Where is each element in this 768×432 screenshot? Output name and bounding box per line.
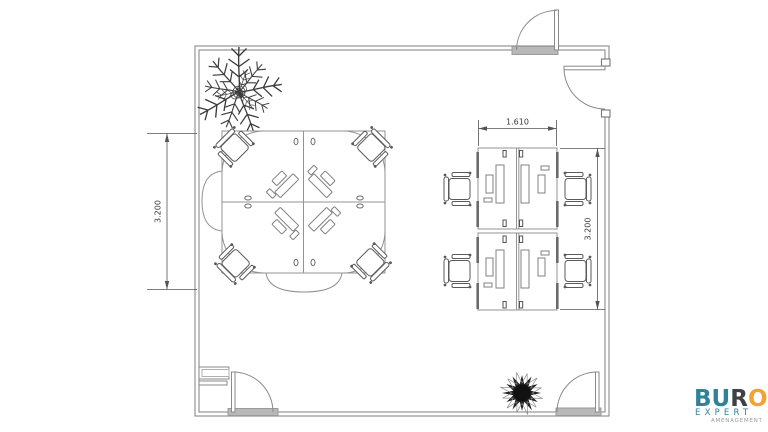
monitor bbox=[521, 165, 529, 203]
wall-cabinet-bottom-left bbox=[199, 367, 229, 385]
arrowhead bbox=[165, 281, 169, 290]
floor-plan-canvas: 3.200 1.610 3.200 BURO EXPERT AMENAGEMEN… bbox=[0, 0, 768, 432]
keyboard bbox=[538, 258, 545, 276]
keyboard bbox=[486, 258, 493, 276]
office-chair bbox=[564, 172, 592, 207]
dimension-label-right: 3.200 bbox=[584, 218, 593, 241]
door-leaf bbox=[596, 372, 600, 412]
door-leaf bbox=[555, 10, 559, 50]
dimension-label-left: 3.200 bbox=[154, 200, 163, 223]
door-swing-arc bbox=[517, 11, 557, 51]
desk-phone bbox=[541, 166, 549, 170]
office-chair bbox=[444, 172, 472, 207]
office-chair bbox=[564, 254, 592, 289]
office-chair bbox=[444, 254, 472, 289]
desk-phone bbox=[541, 251, 549, 255]
arrowhead bbox=[165, 134, 169, 143]
monitor bbox=[521, 250, 529, 288]
keyboard bbox=[538, 175, 545, 193]
logo-subtitle-amenagement: AMENAGEMENT bbox=[711, 418, 763, 424]
door-threshold bbox=[556, 408, 601, 416]
logo-buro-expert: BURO EXPERT AMENAGEMENT bbox=[694, 386, 768, 424]
dimension-label-width: 1.610 bbox=[506, 118, 529, 127]
door-leaf bbox=[564, 66, 605, 70]
door-top bbox=[512, 10, 559, 55]
door-threshold bbox=[512, 47, 558, 55]
monitor bbox=[496, 165, 504, 203]
desk-phone bbox=[484, 198, 492, 202]
wall-jamb-cap bbox=[602, 110, 611, 117]
cabinet-bevel bbox=[202, 370, 229, 377]
keyboard bbox=[486, 175, 493, 193]
wall-jamb-cap bbox=[602, 59, 611, 66]
floor-plan-page: 3.200 1.610 3.200 BURO EXPERT AMENAGEMEN… bbox=[0, 0, 768, 432]
door-leaf bbox=[232, 372, 236, 412]
cabinet-slat bbox=[199, 381, 227, 385]
logo-subtitle-expert: EXPERT bbox=[695, 408, 752, 418]
monitor bbox=[496, 250, 504, 288]
right-wall-door-opening bbox=[601, 66, 612, 110]
desk-phone bbox=[484, 283, 492, 287]
desk-cluster-left bbox=[202, 124, 395, 292]
dimension-left: 3.200 bbox=[147, 134, 197, 290]
